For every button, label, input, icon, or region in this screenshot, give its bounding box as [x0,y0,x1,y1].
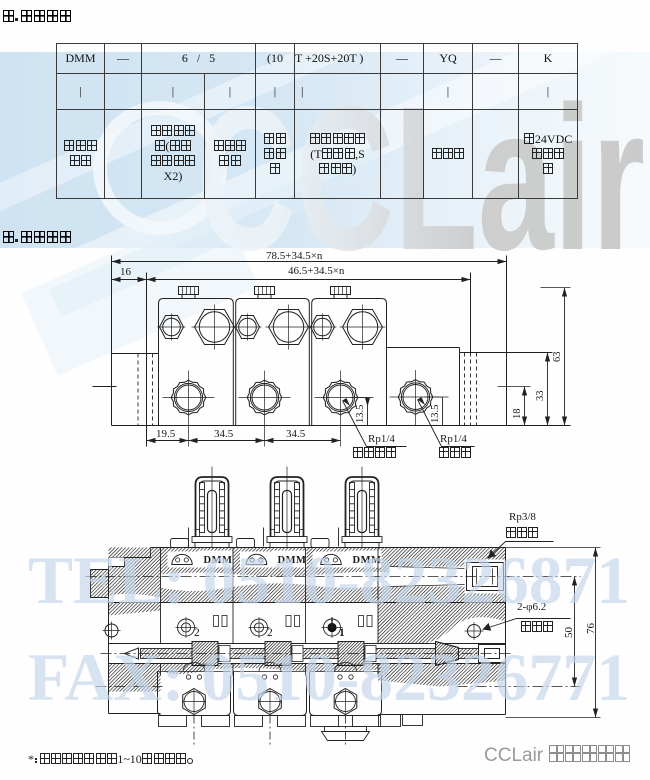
svg-text:TEL: 0510-82326871: TEL: 0510-82326871 [28,542,630,618]
svg-text:FAX: 0510-82326771: FAX: 0510-82326771 [28,639,630,715]
